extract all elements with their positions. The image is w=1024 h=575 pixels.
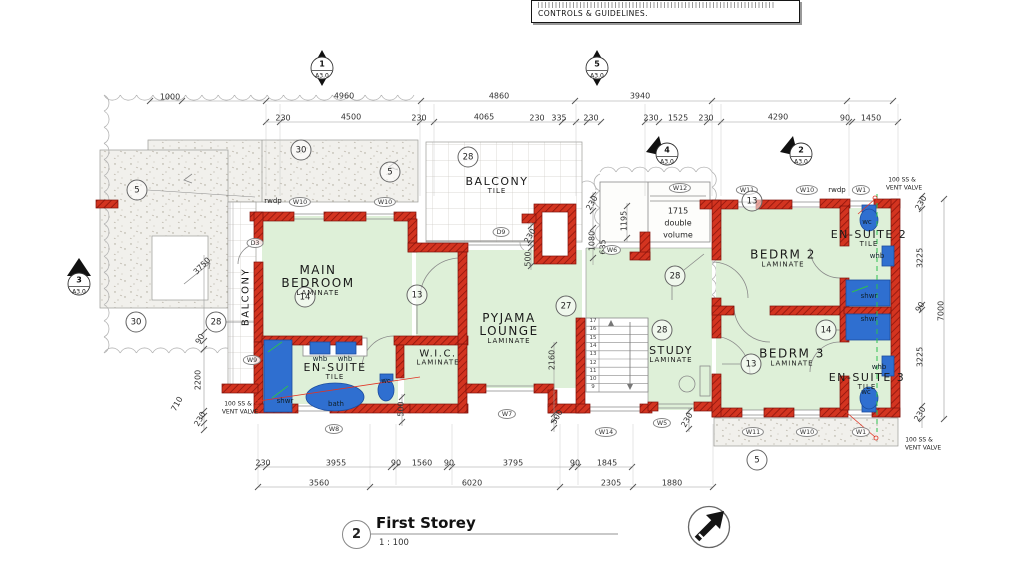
dim-label-3560: 3560 [309,479,329,488]
window-tag-w5: W5 [653,418,671,428]
dim-label-335: 335 [551,114,566,123]
dim-label-710: 710 [169,395,184,413]
annotation-vent-valve: VENT VALVE [222,409,258,416]
dim-label-90: 90 [194,332,207,345]
annotation-100-ss: 100 SS & [888,177,916,184]
room-finish: LAMINATE [626,357,716,365]
annotation-volume: volume [663,231,693,240]
room-label-en-suite-2: EN-SUITE 2TILE [814,229,924,249]
annotation-vent-valve: VENT VALVE [886,185,922,192]
window-tag-w10: W10 [796,185,818,195]
dim-label-6020: 6020 [462,479,482,488]
window-tag-w1: W1 [852,427,870,437]
dim-label-4500: 4500 [341,113,361,122]
callout-5: 5 [380,162,401,183]
room-name: PYJAMA LOUNGE [458,312,560,338]
annotation-rwdp: rwdp [828,186,846,194]
dim-label-230: 230 [522,227,537,245]
dim-label-1450: 1450 [861,114,881,123]
dim-label-230: 230 [192,410,207,428]
room-name: BALCONY [241,237,252,357]
dim-label-3225: 3225 [916,347,925,367]
dim-label-230: 230 [529,114,544,123]
room-label-en-suite-3: EN-SUITE 3TILE [812,372,922,392]
dim-label-90: 90 [840,114,850,123]
dim-label-1880: 1880 [662,479,682,488]
callout-30: 30 [126,312,147,333]
room-label-en-suite: EN-SUITETILE [275,362,395,382]
room-finish: TILE [812,384,922,392]
fixture-label-shwr: shwr [277,397,294,405]
dim-label-1000: 1000 [160,93,180,102]
stair-number-9: 9 [591,384,595,390]
callout-28: 28 [665,266,686,287]
stair-number-12: 12 [590,360,597,366]
drawing-scale: 1 : 100 [379,538,409,548]
fixture-label-bath: bath [328,400,344,408]
dim-label-3750: 3750 [192,256,213,277]
note-text: CONTROLS & GUIDELINES. [538,9,799,18]
room-name: MAIN BEDROOM [262,264,374,290]
callout-13: 13 [407,285,428,306]
dim-label-3940: 3940 [630,92,650,101]
dim-label-230: 230 [583,114,598,123]
annotation-100-ss: 100 SS & [224,401,252,408]
door-tag-d9: D9 [493,227,510,237]
dim-label-90: 90 [570,459,580,468]
fixture-label-shwr: shwr [861,292,878,300]
room-finish: TILE [275,374,395,382]
dim-label-4290: 4290 [768,113,788,122]
dim-label-7000: 7000 [937,301,946,321]
room-label-balcony: BALCONYTILE [437,176,557,196]
room-label-main-bedroom: MAIN BEDROOMLAMINATE [262,264,374,298]
dim-label-1560: 1560 [412,459,432,468]
callout-28: 28 [206,312,227,333]
window-tag-w10: W10 [374,197,396,207]
dim-label-3795: 3795 [503,459,523,468]
window-tag-w11: W11 [742,427,764,437]
dim-label-230: 230 [679,411,694,429]
callout-5: 5 [747,450,768,471]
callout-30: 30 [291,140,312,161]
dim-label-500: 500 [549,408,564,426]
annotation-vent-valve: VENT VALVE [905,445,941,452]
window-tag-w10: W10 [796,427,818,437]
dim-label-230: 230 [698,114,713,123]
note-box: CONTROLS & GUIDELINES. [531,0,800,23]
window-tag-w10: W10 [289,197,311,207]
room-label-w-i-c: W.I.C.LAMINATE [393,349,483,368]
dim-label-3955: 3955 [326,459,346,468]
stair-number-10: 10 [590,376,597,382]
room-finish: LAMINATE [262,290,374,298]
window-tag-w8: W8 [325,424,343,434]
drawing-number-badge: 2 [342,520,371,549]
fixture-label-whb: whb [870,252,885,260]
dim-label-230: 230 [255,459,270,468]
annotation-double: double [664,219,691,228]
annotation-100-ss: 100 SS & [905,437,933,444]
window-tag-w12: W12 [669,183,691,193]
dim-label-90: 90 [391,459,401,468]
note-cropped-line [538,2,774,8]
dim-label-1195: 1195 [620,211,629,231]
stair-number-14: 14 [590,343,597,349]
annotation-rwdp: rwdp [264,197,282,205]
room-finish: LAMINATE [393,360,483,368]
dim-label-2160: 2160 [548,350,557,370]
dim-label-230: 230 [643,114,658,123]
callout-14: 14 [816,320,837,341]
stair-number-15: 15 [590,335,597,341]
dim-label-230: 230 [275,114,290,123]
stair-number-11: 11 [590,368,597,374]
dim-label-1080: 1080 [588,231,597,251]
dim-label-2200: 2200 [194,370,203,390]
dim-label-1525: 1525 [668,114,688,123]
dim-label-230: 230 [411,114,426,123]
dim-label-90: 90 [914,300,927,313]
dim-label-1845: 1845 [597,459,617,468]
fixture-label-shwr: shwr [861,315,878,323]
stair-number-17: 17 [590,318,597,324]
annotation-1715: 1715 [668,207,688,216]
dim-label-4960: 4960 [334,92,354,101]
fixture-label-whb: whb [872,363,887,371]
dim-label-230: 230 [913,194,928,212]
dim-label-500: 500 [524,251,533,266]
room-finish: TILE [437,188,557,196]
callout-28: 28 [652,320,673,341]
stair-number-13: 13 [590,351,597,357]
label-layer: 1000496048603940230450023040652303352302… [0,0,1024,575]
room-label-bedrm-3: BEDRM 3LAMINATE [737,348,847,369]
dim-label-230: 230 [912,405,927,423]
callout-13: 13 [742,191,763,212]
window-tag-w6: W6 [603,245,621,255]
callout-28: 28 [458,147,479,168]
dim-label-230: 230 [584,194,599,212]
dim-label-3225: 3225 [916,248,925,268]
callout-5: 5 [127,180,148,201]
stair-number-16: 16 [590,326,597,332]
dim-label-4065: 4065 [474,113,494,122]
window-tag-w7: W7 [498,409,516,419]
room-finish: LAMINATE [737,361,847,369]
room-finish: LAMINATE [728,262,838,270]
dim-label-2305: 2305 [601,479,621,488]
room-finish: LAMINATE [458,338,560,346]
room-finish: TILE [814,241,924,249]
floorplan-canvas: 1A3.05A3.04A3.02A3.03A3.0 10004960486039… [0,0,1024,575]
room-label-bedrm-2: BEDRM 2LAMINATE [728,249,838,270]
dim-label-90: 90 [444,459,454,468]
fixture-label-wc: wc [862,218,872,226]
drawing-title: First Storey [376,514,476,532]
room-label-study: STUDYLAMINATE [626,345,716,365]
title-underline [371,533,618,535]
room-label-pyjama-lounge: PYJAMA LOUNGELAMINATE [458,312,560,346]
window-tag-w14: W14 [595,427,617,437]
window-tag-w1: W1 [852,185,870,195]
room-label-balcony: BALCONY [241,237,252,357]
dim-label-500: 500 [397,401,406,416]
dim-label-4860: 4860 [489,92,509,101]
